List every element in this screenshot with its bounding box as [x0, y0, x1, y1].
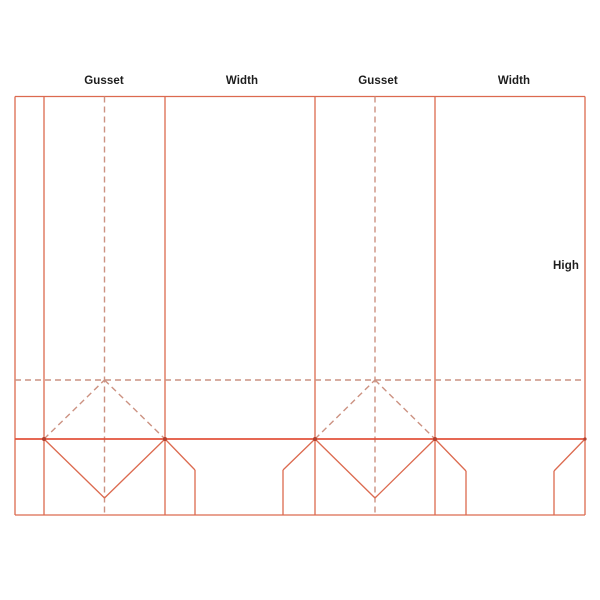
gusset2-diamond-fold-left [315, 380, 375, 439]
dashed-fold-lines [15, 97, 585, 516]
bag-dieline-diagram: Gusset Width Gusset Width High [0, 0, 600, 600]
junction-dot [313, 437, 317, 441]
width1-flap-diagonal-right [283, 439, 315, 470]
junction-dot [433, 437, 437, 441]
panel-label-gusset-1: Gusset [84, 75, 124, 87]
gusset-diamond-cuts [44, 439, 435, 498]
gusset1-diamond-fold-left [44, 380, 105, 439]
gusset1-diamond-fold-right [105, 380, 166, 439]
dieline-drawing [0, 0, 600, 600]
panel-label-gusset-2: Gusset [358, 75, 398, 87]
panel-dividers [44, 97, 435, 516]
panel-label-high: High [553, 260, 579, 272]
junction-dot [163, 437, 167, 441]
width1-flap-diagonal-left [165, 439, 195, 470]
gusset2-diamond-fold-right [375, 380, 435, 439]
panel-label-width-1: Width [226, 75, 258, 87]
gusset1-v-cut-right [105, 439, 166, 498]
gusset2-v-cut-left [315, 439, 375, 498]
panel-label-width-2: Width [498, 75, 530, 87]
gusset1-v-cut-left [44, 439, 105, 498]
outer-outline [15, 97, 585, 516]
junction-dot [42, 437, 46, 441]
width2-flap-diagonal-right [554, 439, 585, 471]
width2-flap-diagonal-left [435, 439, 466, 471]
junction-dot [583, 437, 586, 440]
gusset2-v-cut-right [375, 439, 435, 498]
